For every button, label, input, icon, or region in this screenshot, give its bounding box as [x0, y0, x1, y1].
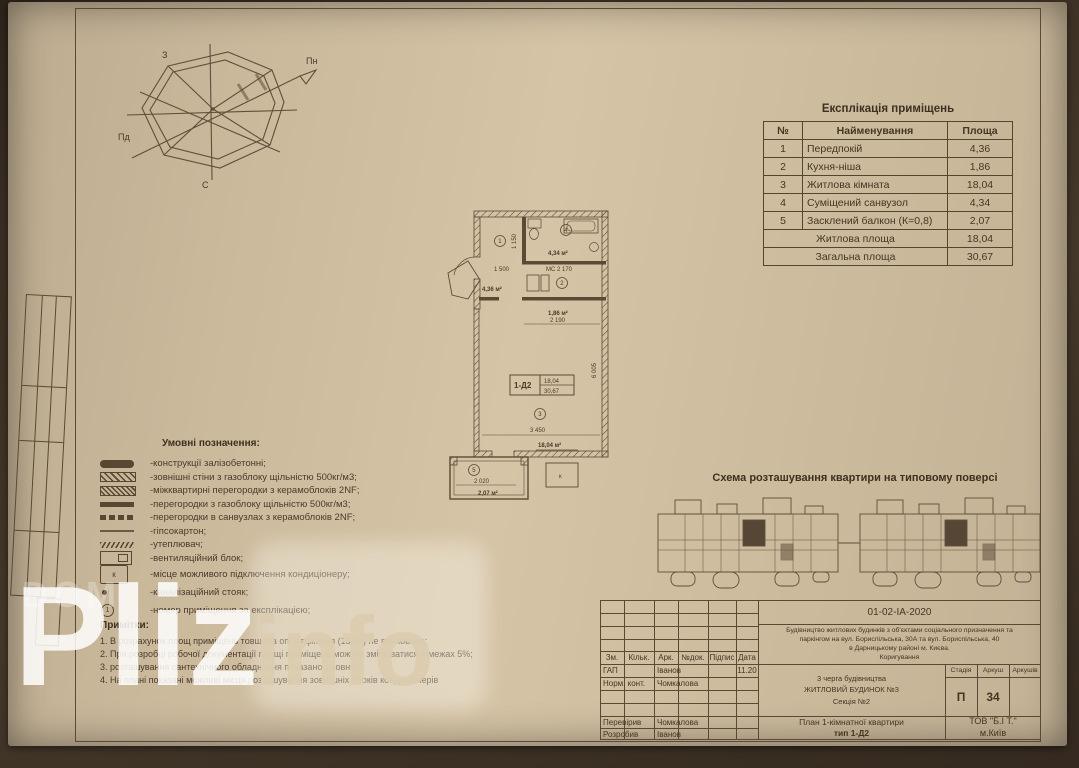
- building-wing-right: [860, 498, 1040, 588]
- legend-item: -конструкції залізобетонні;: [100, 457, 470, 471]
- company: ТОВ "Б.І Т." м.Київ: [945, 716, 1041, 740]
- area3-label: 18,04 м²: [538, 442, 561, 449]
- area1-label: 4,36 м²: [482, 286, 502, 293]
- project-description: Будівництво житлових будинків з об'єктам…: [758, 624, 1041, 664]
- symbol-insulation: [100, 542, 134, 548]
- col-name: Найменування: [803, 122, 948, 140]
- sheet-label: Аркуш: [977, 664, 1009, 677]
- compass-label-n: Пн: [306, 56, 317, 66]
- name-developed: Іванов: [654, 728, 711, 740]
- area4-label: 4,34 м²: [548, 250, 568, 257]
- room1-number: 1: [498, 239, 502, 245]
- table-row: 5Засклений балкон (К=0,8)2,07: [764, 212, 1013, 230]
- table-row: 2Кухня-ніша1,86: [764, 158, 1013, 176]
- dim-ms-2170: МС 2 170: [546, 267, 573, 273]
- symbol-exterior-wall-hatch: [100, 472, 136, 482]
- ac-unit-box: [546, 463, 578, 487]
- tag-total: 30,67: [544, 389, 560, 395]
- table-row: 1Передпокій4,36: [764, 140, 1013, 158]
- sheet-number: 34: [977, 677, 1009, 716]
- col-header-ndok: №док.: [678, 651, 708, 664]
- name-gap: Іванов: [654, 664, 711, 677]
- area2-label: 1,86 м²: [548, 310, 568, 317]
- dim-2020: 2 020: [474, 479, 490, 485]
- compass-label-e: С: [202, 180, 209, 190]
- symbol-gasblock-partition: [100, 502, 134, 507]
- symbol-gypsum-board: [100, 530, 134, 532]
- col-header-data: Дата: [736, 651, 758, 664]
- ac-k-label: к: [559, 474, 562, 480]
- wall-left-upper: [474, 217, 480, 257]
- dim-3450: 3 450: [530, 428, 546, 434]
- name-normcont: Чомкалова: [654, 677, 711, 690]
- dim-1500: 1 500: [494, 267, 510, 273]
- dim-1150: 1 150: [512, 233, 518, 249]
- symbol-bathroom-partition: [100, 515, 134, 520]
- object-name: 3 черга будівництва ЖИТЛОВИЙ БУДИНОК №3 …: [758, 664, 945, 716]
- sink: [590, 243, 599, 252]
- sheet-title: План 1-кімнатної квартири тип 1-Д2: [758, 716, 945, 740]
- compass-label-w: З: [162, 50, 167, 60]
- toilet-tank: [528, 219, 541, 228]
- partition-room1-room4: [522, 217, 526, 261]
- col-header-zm: Зм.: [600, 651, 624, 664]
- watermark-pliz: Pliz: [14, 566, 259, 708]
- explication-table: № Найменування Площа 1Передпокій4,36 2Ку…: [763, 121, 1013, 266]
- area5-label: 2,07 м²: [478, 490, 498, 497]
- partition-niche-bottom: [522, 297, 606, 301]
- explication-block: Експлікація приміщень № Найменування Пло…: [763, 103, 1013, 266]
- col-header-ark: Арк.: [654, 651, 678, 664]
- legend-item: -зовнішні стіни з газоблоку щільністю 50…: [100, 471, 470, 485]
- summary-row-total: Загальна площа30,67: [764, 248, 1013, 266]
- building-wing-left: [658, 498, 838, 588]
- symbol-reinforced-concrete: [100, 460, 134, 468]
- compass-label-s: Пд: [118, 132, 130, 142]
- stage-label: Стадія: [945, 664, 977, 677]
- explication-title: Експлікація приміщень: [763, 103, 1013, 115]
- partition-bath-bottom: [522, 261, 606, 265]
- legend-item: -перегородки з газоблоку щільністю 500кг…: [100, 498, 470, 512]
- legend-title: Умовні позначення:: [162, 438, 470, 449]
- table-row: 4Суміщений санвузол4,34: [764, 194, 1013, 212]
- wall-bottom-right: [514, 451, 608, 457]
- stair-core: [945, 520, 967, 546]
- wall-left-lower: [474, 309, 479, 451]
- legend-item: -перегородки в санвузлах з керамоблоків …: [100, 511, 470, 525]
- stage-value: П: [945, 677, 977, 716]
- room5-number: 5: [472, 468, 476, 474]
- photo-of-drawing-sheet: З Пн Пд С Експлікація приміщень № Наймен…: [0, 0, 1079, 768]
- highlighted-apartment: [743, 520, 765, 546]
- vent-block: [541, 275, 549, 291]
- wall-right: [602, 211, 608, 457]
- wall-bottom-left: [474, 451, 492, 457]
- wall-left-mid: [474, 279, 480, 309]
- symbol-interflat-wall-hatch: [100, 486, 136, 496]
- scheme-title: Схема розташування квартири на типовому …: [660, 472, 1050, 484]
- tag-living: 18,04: [544, 379, 560, 385]
- col-num: №: [764, 122, 803, 140]
- sheets-label: Аркушів: [1009, 664, 1041, 677]
- role-developed: Розробив: [600, 728, 657, 740]
- typical-floor-scheme: [655, 492, 1047, 600]
- summary-row-living: Житлова площа18,04: [764, 230, 1013, 248]
- legend-item: -міжквартирні перегородки з керамоблоків…: [100, 484, 470, 498]
- wall-top: [474, 211, 608, 217]
- dim-2190: 2 190: [550, 318, 566, 324]
- tag-label: 1-Д2: [514, 381, 532, 390]
- col-area: Площа: [948, 122, 1013, 140]
- role-gap: ГАП: [600, 664, 657, 677]
- name-checked: Чомкалова: [654, 716, 711, 728]
- room3-number: 3: [538, 412, 542, 418]
- doc-number: 01-02-ІА-2020: [758, 600, 1041, 624]
- col-header-pidpys: Підпис: [708, 651, 736, 664]
- vent-block: [527, 275, 539, 291]
- dim-6005: 6 005: [592, 362, 598, 378]
- col-header-kilk: Кільк.: [624, 651, 654, 664]
- watermark-info: info: [254, 602, 434, 700]
- title-block: Зм. Кільк. Арк. №док. Підпис Дата ГАП Ів…: [600, 600, 1041, 740]
- legend-item: -гіпсокартон;: [100, 525, 470, 539]
- compass-rose: З Пн Пд С: [110, 38, 325, 213]
- toilet: [530, 229, 539, 240]
- partition-hall-room3: [479, 297, 499, 301]
- role-normcont: Норм. конт.: [600, 677, 657, 690]
- room2-number: 2: [560, 281, 564, 287]
- table-row: 3Житлова кімната18,04: [764, 176, 1013, 194]
- role-checked: Перевірив: [600, 716, 657, 728]
- date-gap: 11.20: [736, 664, 758, 677]
